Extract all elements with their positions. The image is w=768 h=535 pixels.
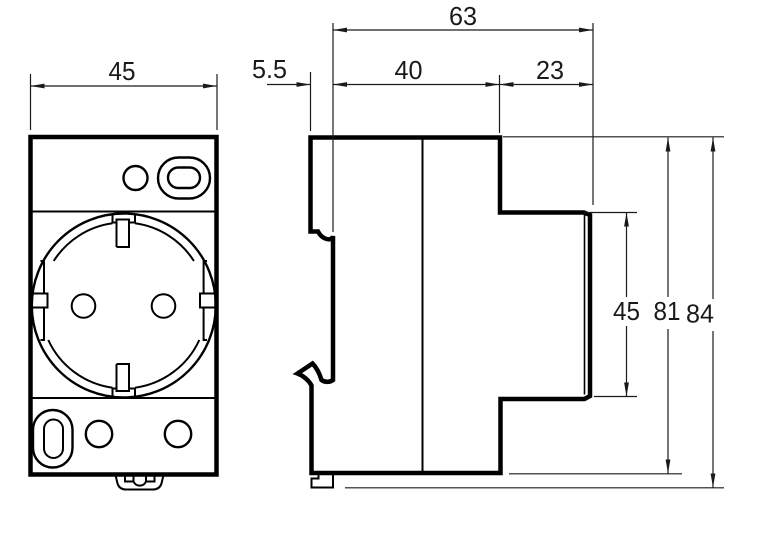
arrowhead-up <box>624 213 629 227</box>
dim-front-depth: 23 <box>500 23 594 205</box>
top-panel-hole <box>124 166 148 190</box>
pin-hole-left <box>72 294 96 318</box>
socket-face <box>32 214 216 398</box>
dim-rail-offset: 5.5 <box>252 54 311 131</box>
dim-label-body-height: 81 <box>654 296 681 326</box>
din-clip-outer <box>116 475 164 490</box>
bottom-panel-hole-left <box>86 421 112 447</box>
dim-total-depth: 63 <box>333 1 593 32</box>
top-panel-slot-outer <box>158 158 210 199</box>
dim-label-front-depth: 23 <box>536 55 564 85</box>
arrowhead-right <box>579 28 593 33</box>
arrowhead-right <box>203 84 217 89</box>
front-view <box>31 137 217 490</box>
top-panel-slot-inner <box>168 168 200 189</box>
socket-collar-circle <box>32 214 216 398</box>
din-clip-inner <box>125 476 155 486</box>
arrowhead-left <box>333 82 347 87</box>
earth-notch-top <box>113 214 136 248</box>
arrowhead-down <box>624 383 629 397</box>
earth-notch-bottom <box>113 364 136 398</box>
arrowhead-left <box>333 28 347 33</box>
side-profile-outline <box>298 138 591 474</box>
dim-rail-to-front: 40 <box>333 23 500 232</box>
dim-label-rail-offset: 5.5 <box>252 54 287 84</box>
arrowhead-right <box>297 82 311 87</box>
din-clip-tab <box>116 475 164 490</box>
dim-label-front-width: 45 <box>109 56 136 86</box>
arrowhead-left <box>31 84 45 89</box>
pin-hole-right <box>152 294 176 318</box>
bottom-panel-hole-right <box>165 421 191 447</box>
bottom-panel-slot-inner <box>44 420 63 459</box>
arrowhead-down <box>711 474 716 488</box>
arrowhead-down <box>666 460 671 474</box>
dim-label-rail-to-front: 40 <box>395 55 423 85</box>
technical-drawing-page: 45 5.5 40 23 63 <box>0 0 768 535</box>
side-view <box>298 138 591 488</box>
rail-foot <box>312 474 334 488</box>
arrowhead-up <box>711 138 716 152</box>
arrowhead-right <box>486 82 500 87</box>
din-socket-technical-drawing: 45 5.5 40 23 63 <box>0 0 768 535</box>
arrowhead-up <box>666 138 671 152</box>
dim-label-front-height: 45 <box>613 296 640 326</box>
arrowhead-left <box>500 82 514 87</box>
arrowhead-right <box>579 82 593 87</box>
dim-front-width: 45 <box>31 56 218 130</box>
dim-label-total-depth: 63 <box>449 1 477 31</box>
dimensions: 45 5.5 40 23 63 <box>31 1 725 488</box>
dim-front-height: 45 <box>584 213 640 397</box>
dim-label-total-height: 84 <box>686 299 714 329</box>
